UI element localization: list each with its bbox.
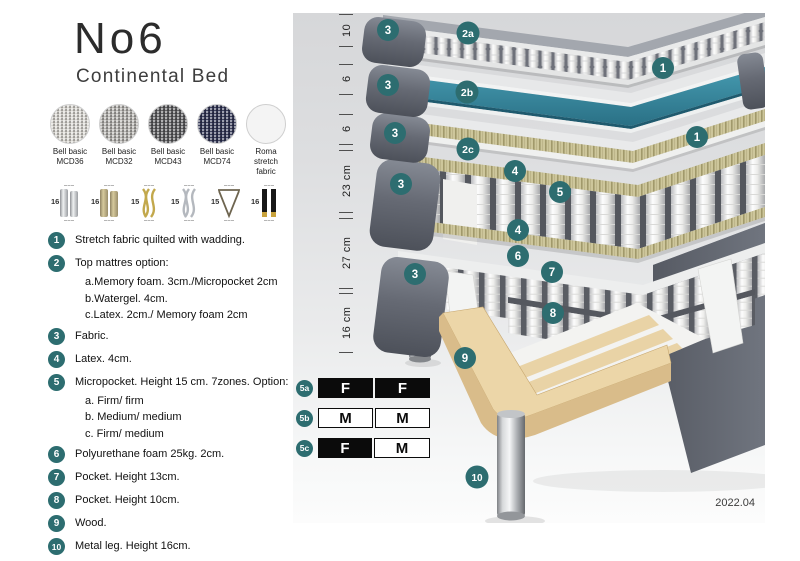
legend-text: Wood.: [75, 515, 107, 532]
badge-4: 4: [507, 219, 529, 241]
info-column: No6 Continental Bed Bell basicMCD36 Bell…: [48, 16, 300, 561]
fabric-swatch: Romastretch fabric: [244, 104, 288, 177]
badge-3: 3: [377, 74, 399, 96]
badge-7: 7: [541, 261, 563, 283]
badge-3: 3: [390, 173, 412, 195]
ruler-tick: [339, 352, 353, 353]
firmness-cell: M: [318, 408, 373, 428]
svg-text:4: 4: [515, 225, 522, 237]
svg-text:4: 4: [512, 166, 519, 178]
badge-3: 3: [384, 122, 406, 144]
fabric-name: Bell basic: [151, 147, 185, 156]
legend-number-badge: 4: [48, 351, 65, 368]
ruler-tick: [339, 212, 353, 213]
legend-subitem: b. Medium/ medium: [85, 410, 300, 425]
legend-subitem: b.Watergel. 4cm.: [85, 292, 300, 307]
badge-6: 6: [507, 245, 529, 267]
ruler-label: 6: [337, 114, 357, 144]
fabric-swatch: Bell basicMCD74: [195, 104, 239, 177]
svg-text:3: 3: [385, 80, 391, 92]
fabric-swatch-circle: [148, 104, 188, 144]
svg-text:5: 5: [557, 187, 564, 199]
legend-number-badge: 8: [48, 492, 65, 509]
leg-option: 16: [50, 184, 88, 222]
badge-1: 1: [652, 57, 674, 79]
badge-5: 5: [549, 181, 571, 203]
ruler-tick: [339, 144, 353, 145]
leg-option: 15: [130, 184, 168, 222]
fabric-code: MCD43: [154, 157, 181, 166]
legend-item: 1Stretch fabric quilted with wadding.: [48, 232, 300, 249]
ruler-label: 23 cm: [337, 150, 357, 212]
legend-subitem: a.Memory foam. 3cm./Micropocket 2cm: [85, 275, 300, 290]
legend-item: 6Polyurethane foam 25kg. 2cm.: [48, 446, 300, 463]
legend-item: 8Pocket. Height 10cm.: [48, 492, 300, 509]
firmness-option-badge: 5c: [296, 440, 313, 457]
product-subtitle: Continental Bed: [76, 66, 300, 88]
bed-diagram-panel: 3 2a 1 3 2b 3 2c 1 4 5 3 4 6 7 3 8 9 10: [293, 13, 765, 523]
legend-text: Fabric.: [75, 328, 109, 345]
badge-2a: 2a: [457, 22, 480, 45]
legend-item: 9Wood.: [48, 515, 300, 532]
ruler-label: 27 cm: [337, 218, 357, 288]
firmness-row: 5b M M: [296, 408, 430, 428]
svg-text:8: 8: [550, 308, 557, 320]
badge-10: 10: [466, 466, 489, 489]
svg-text:9: 9: [462, 353, 468, 365]
fabric-swatch-circle: [50, 104, 90, 144]
fabric-swatch-circle: [99, 104, 139, 144]
leg-height: 15: [131, 197, 139, 206]
leg-options: 16 16 15 15: [50, 184, 300, 222]
leg-height: 15: [171, 197, 179, 206]
legend-subitem: c. Firm/ medium: [85, 427, 300, 442]
firmness-option-badge: 5a: [296, 380, 313, 397]
firmness-row: 5a F F: [296, 378, 430, 398]
badge-2b: 2b: [456, 81, 479, 104]
ruler-tick: [339, 46, 353, 47]
ruler-tick: [339, 288, 353, 289]
svg-text:2b: 2b: [461, 87, 473, 99]
leg-height: 16: [51, 197, 59, 206]
badge-8: 8: [542, 302, 564, 324]
leg-option: 15: [170, 184, 208, 222]
ruler-label: 16 cm: [337, 293, 357, 352]
legend-list: 1Stretch fabric quilted with wadding. 2T…: [48, 232, 300, 555]
fabric-swatch: Bell basicMCD36: [48, 104, 92, 177]
fabric-code: MCD32: [105, 157, 132, 166]
legend-item: 5Micropocket. Height 15 cm. 7zones. Opti…: [48, 374, 300, 391]
fabric-swatch-circle: [197, 104, 237, 144]
svg-text:7: 7: [549, 267, 555, 279]
legend-item: 10Metal leg. Height 16cm.: [48, 538, 300, 555]
badge-3: 3: [404, 263, 426, 285]
svg-text:1: 1: [660, 63, 667, 75]
fabric-code: stretch fabric: [254, 157, 278, 176]
floor-shadow: [533, 470, 765, 492]
fabric-swatch: Bell basicMCD32: [97, 104, 141, 177]
legend-number-badge: 3: [48, 328, 65, 345]
legend-text: Top mattres option:: [75, 255, 169, 272]
firmness-cell: M: [374, 438, 430, 458]
fabric-swatch: Bell basicMCD43: [146, 104, 190, 177]
fabric-swatches: Bell basicMCD36 Bell basicMCD32 Bell bas…: [48, 104, 300, 177]
svg-text:3: 3: [412, 269, 418, 281]
legend-text: Latex. 4cm.: [75, 351, 132, 368]
badge-4: 4: [504, 160, 526, 182]
firmness-row: 5c F M: [296, 438, 430, 458]
svg-text:2a: 2a: [462, 28, 474, 40]
fabric-name: Bell basic: [53, 147, 87, 156]
legend-text: Pocket. Height 13cm.: [75, 469, 180, 486]
legend-text: Metal leg. Height 16cm.: [75, 538, 191, 555]
firmness-cell: M: [375, 408, 430, 428]
firmness-cell: F: [375, 378, 430, 398]
svg-text:3: 3: [385, 25, 391, 37]
svg-text:1: 1: [694, 132, 701, 144]
ruler-label: 6: [337, 64, 357, 94]
legend-number-badge: 5: [48, 374, 65, 391]
firmness-option-badge: 5b: [296, 410, 313, 427]
legend-number-badge: 10: [48, 538, 65, 555]
leg-height: 16: [251, 197, 259, 206]
legend-item: 3Fabric.: [48, 328, 300, 345]
badge-9: 9: [454, 347, 476, 369]
badge-1: 1: [686, 126, 708, 148]
legend-subitem: c.Latex. 2cm./ Memory foam 2cm: [85, 308, 300, 323]
fabric-name: Bell basic: [200, 147, 234, 156]
leg-option: 15: [210, 184, 248, 222]
product-title: No6: [74, 16, 300, 62]
legend-item: 7Pocket. Height 13cm.: [48, 469, 300, 486]
fabric-name: Bell basic: [102, 147, 136, 156]
badge-2c: 2c: [457, 138, 480, 161]
legend-number-badge: 1: [48, 232, 65, 249]
ruler-label: 10: [337, 14, 357, 46]
legend-item: 4Latex. 4cm.: [48, 351, 300, 368]
fabric-code: MCD36: [56, 157, 83, 166]
legend-number-badge: 9: [48, 515, 65, 532]
svg-text:10: 10: [471, 473, 483, 484]
legend-text: Polyurethane foam 25kg. 2cm.: [75, 446, 224, 463]
legend-number-badge: 2: [48, 255, 65, 272]
svg-text:6: 6: [515, 251, 521, 263]
firmness-cell: F: [318, 378, 373, 398]
badge-3: 3: [377, 19, 399, 41]
fabric-name: Roma: [255, 147, 276, 156]
firmness-cell: F: [318, 438, 372, 458]
leg-height: 16: [91, 197, 99, 206]
version-label: 2022.04: [715, 497, 755, 509]
legend-number-badge: 7: [48, 469, 65, 486]
legend-text: Pocket. Height 10cm.: [75, 492, 180, 509]
legend-item: 2Top mattres option:: [48, 255, 300, 272]
leg-option: 16: [90, 184, 128, 222]
legend-number-badge: 6: [48, 446, 65, 463]
leg-height: 15: [211, 197, 219, 206]
svg-text:3: 3: [398, 179, 404, 191]
fabric-swatch-circle: [246, 104, 286, 144]
fabric-code: MCD74: [203, 157, 230, 166]
svg-text:3: 3: [392, 128, 398, 140]
legend-subitem: a. Firm/ firm: [85, 394, 300, 409]
legend-text: Micropocket. Height 15 cm. 7zones. Optio…: [75, 374, 288, 391]
svg-text:2c: 2c: [462, 144, 474, 156]
legend-text: Stretch fabric quilted with wadding.: [75, 232, 245, 249]
ruler-tick: [339, 94, 353, 95]
leg-option: 16: [250, 184, 288, 222]
